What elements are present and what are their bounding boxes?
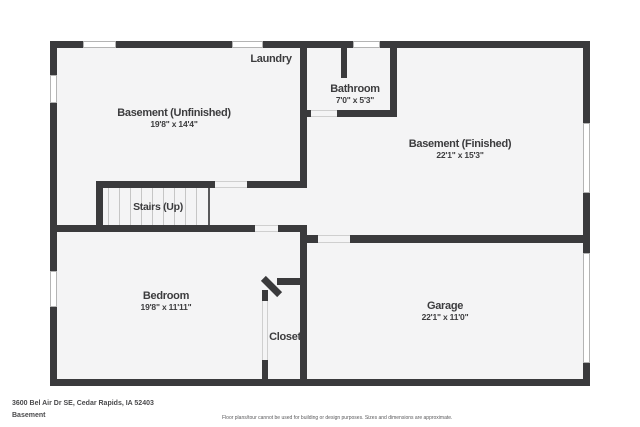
- window-bedroom: [50, 271, 57, 307]
- stair-tread: [108, 188, 109, 225]
- wall-closet-left-lower: [262, 360, 268, 379]
- wall-outer-bottom: [50, 379, 590, 386]
- opening-bedroom-door: [255, 225, 278, 232]
- stair-tread: [185, 188, 186, 225]
- wall-stairs-top-left: [96, 181, 215, 188]
- wall-outer-top: [50, 41, 590, 48]
- wall-bedroom-top-left: [50, 225, 255, 232]
- window-top-1: [83, 41, 116, 48]
- wall-bathroom-bottom: [337, 110, 397, 117]
- stair-tread: [196, 188, 197, 225]
- room-label-laundry: Laundry: [250, 53, 291, 65]
- room-dims-bedroom: 19'8" x 11'11": [141, 302, 192, 312]
- room-label-bedroom: Bedroom: [143, 290, 189, 302]
- window-left-1: [50, 75, 57, 103]
- room-label-closet: Closet: [269, 331, 301, 343]
- stairs-end-line: [208, 188, 210, 225]
- wall-bathroom-right: [390, 41, 397, 117]
- room-dims-garage: 22'1" x 11'0": [422, 312, 469, 322]
- wall-closet-top: [277, 278, 302, 285]
- room-dims-basement-unfinished: 19'8" x 14'4": [150, 119, 197, 129]
- window-right-finished: [583, 123, 590, 193]
- wall-garage-top: [350, 235, 583, 243]
- opening-garage-entry: [318, 235, 350, 243]
- opening-stairs-hall: [215, 181, 247, 188]
- disclaimer-text: Floor plans/tour cannot be used for buil…: [222, 415, 452, 421]
- property-address: 3600 Bel Air Dr SE, Cedar Rapids, IA 524…: [12, 400, 154, 407]
- room-dims-basement-finished: 22'1" x 15'3": [436, 150, 483, 160]
- room-label-basement-finished: Basement (Finished): [409, 138, 512, 150]
- room-label-garage: Garage: [427, 300, 463, 312]
- room-label-stairs: Stairs (Up): [133, 201, 183, 213]
- stair-tread: [119, 188, 120, 225]
- wall-bathroom-stub: [341, 41, 347, 78]
- floor-area: [50, 41, 590, 386]
- wall-closet-left-upper: [262, 290, 268, 301]
- wall-garage-top-stub: [307, 235, 318, 243]
- room-label-basement-unfinished: Basement (Unfinished): [117, 107, 231, 119]
- floor-level-name: Basement: [12, 412, 45, 419]
- wall-stairs-top-right: [247, 181, 307, 188]
- room-label-bathroom: Bathroom: [330, 83, 380, 95]
- stair-tread: [130, 188, 131, 225]
- opening-closet-door: [262, 301, 268, 360]
- garage-door: [583, 253, 590, 363]
- window-top-2: [232, 41, 263, 48]
- opening-bathroom-door: [311, 110, 337, 117]
- window-bathroom: [353, 41, 380, 48]
- floor-plan-page: Laundry Basement (Unfinished) 19'8" x 14…: [0, 0, 640, 427]
- room-dims-bathroom: 7'0" x 5'3": [336, 95, 374, 105]
- wall-divider-upper: [300, 41, 307, 188]
- wall-divider-lower: [300, 225, 307, 386]
